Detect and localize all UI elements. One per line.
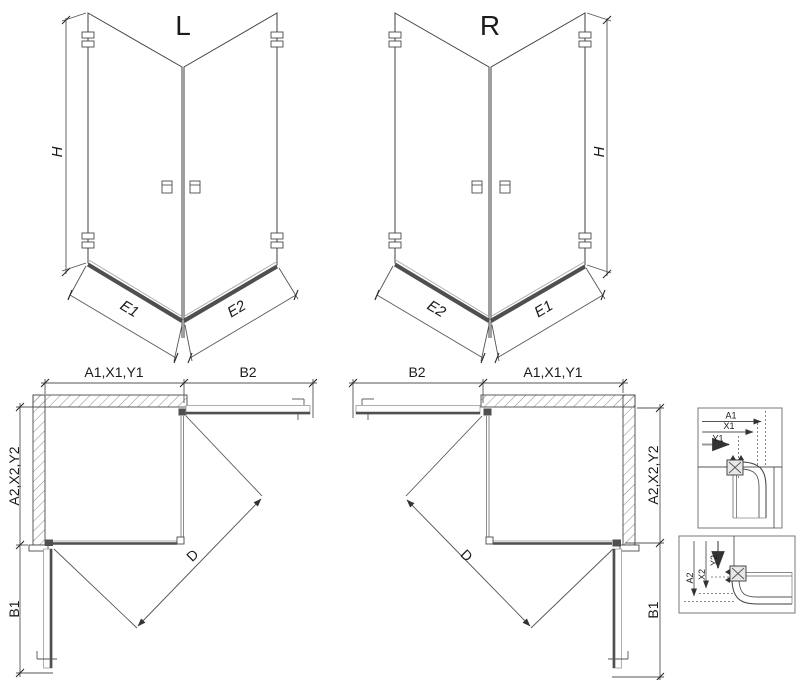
fixed-glass-panel — [53, 416, 184, 544]
diagram-canvas: L H — [0, 0, 800, 680]
corner-connector — [486, 537, 493, 544]
iso-view-right: R H — [375, 10, 611, 363]
fixed-glass-panel — [487, 416, 613, 544]
detail-view-horizontal: A1 X1 Y1 — [698, 408, 782, 528]
dim-label-b2: B2 — [239, 364, 256, 380]
dim-diagonal: D — [54, 416, 262, 628]
pivot-hinge-top — [484, 409, 492, 416]
detail-dim-a2: A2 — [685, 572, 695, 583]
dim-label-d: D — [457, 546, 475, 564]
detail-dim-y1: Y1 — [712, 434, 723, 444]
wall-top — [33, 395, 187, 407]
dim-label-h: H — [591, 146, 608, 157]
corner-post — [489, 319, 491, 338]
plan-view-left: D A1,X1,Y1 B2 A2,X2,Y2 B1 — [6, 364, 317, 677]
open-door-bottom — [608, 549, 628, 668]
detail-view-vertical: A2 X2 Y2 — [679, 536, 795, 613]
detail-dim-a1: A1 — [725, 411, 736, 421]
dim-label-b1: B1 — [6, 600, 22, 617]
dim-label-h: H — [49, 146, 66, 157]
pivot-hinge-bottom — [45, 540, 53, 547]
dim-label-e2: E2 — [424, 297, 449, 321]
iso-right-title: R — [480, 10, 500, 41]
pivot-hinge-bottom — [613, 540, 622, 547]
profile-cross-section — [725, 566, 792, 604]
open-door-top — [186, 399, 310, 420]
pivot-hinge-top — [179, 409, 187, 416]
dim-diagonal: D — [406, 416, 613, 628]
open-door-top — [356, 399, 480, 420]
dim-label-a1x1y1: A1,X1,Y1 — [523, 364, 582, 380]
detail-dim-x2: X2 — [697, 569, 707, 580]
wall-right — [623, 395, 635, 545]
wall-end-profile — [620, 545, 639, 551]
corner-connector — [177, 537, 184, 544]
dim-label-e2: E2 — [224, 297, 249, 321]
dim-label-b1: B1 — [645, 601, 661, 618]
dim-label-a1x1y1: A1,X1,Y1 — [84, 364, 143, 380]
profile-cross-section — [727, 455, 766, 518]
corner-post — [182, 319, 184, 338]
plan-view-right: D B2 A1,X1,Y1 A2,X2,Y2 B1 — [349, 364, 664, 680]
dim-label-e1: E1 — [531, 297, 555, 321]
wall-left — [33, 395, 45, 545]
dim-label-a2x2y2: A2,X2,Y2 — [645, 445, 661, 504]
dim-label-a2x2y2: A2,X2,Y2 — [6, 446, 22, 505]
iso-view-left: L H — [49, 10, 298, 363]
detail-dim-x1: X1 — [723, 421, 734, 431]
detail-dim-y2: Y2 — [709, 555, 719, 566]
drawing-sheet: L H — [0, 0, 800, 680]
dim-label-b2: B2 — [408, 364, 425, 380]
iso-left-title: L — [175, 10, 191, 41]
dim-label-e1: E1 — [117, 297, 141, 321]
dim-height: H — [49, 13, 86, 276]
dim-label-d: D — [183, 546, 201, 564]
wall-top — [481, 395, 635, 407]
open-door-bottom — [37, 549, 57, 668]
